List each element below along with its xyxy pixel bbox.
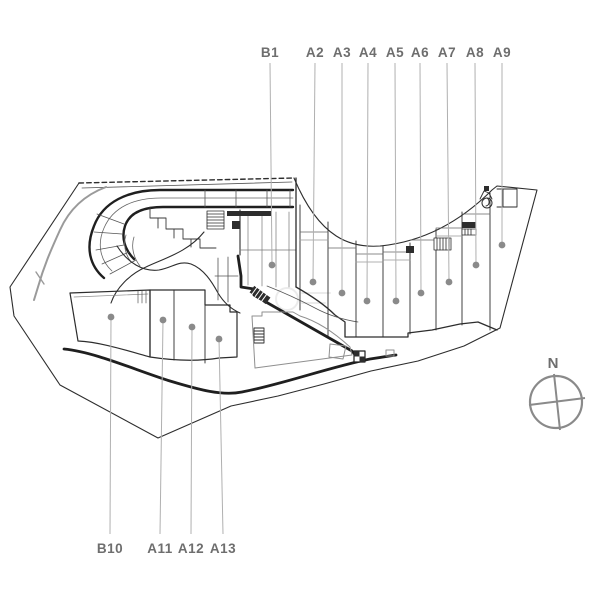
leader-line-A2 [313,63,315,282]
unit-label-A6: A6 [411,45,429,60]
unit-dot-A12 [189,324,196,331]
leader-line-B10 [110,317,111,534]
unit-label-A12: A12 [178,541,204,556]
stair-symbol-3 [462,222,476,235]
boundary-solid [10,178,537,438]
site-plan-canvas: B1A2A3A4A5A6A7A8A9B10A11A12A13 N [0,0,600,600]
block-B1 [227,210,296,287]
stepped-units [150,207,216,248]
north-compass: N [529,355,585,430]
row-east-bottom [296,287,497,337]
unit-dot-A13 [216,336,223,343]
leader-line-A4 [367,63,368,301]
unit-dot-A8 [473,262,480,269]
compass-north-label: N [548,355,559,372]
block-B10 [70,290,150,357]
unit-dot-B1 [269,262,276,269]
checker-pad [354,351,365,362]
unit-label-A8: A8 [466,45,484,60]
unit-label-B1: B1 [261,45,279,60]
podium-edge [64,256,396,393]
unit-dot-A2 [310,279,317,286]
unit-dot-A4 [364,298,371,305]
leader-line-B1 [270,63,272,265]
unit-dot-A11 [160,317,167,324]
unit-dot-A7 [446,279,453,286]
unit-label-A13: A13 [210,541,236,556]
leader-line-A5 [395,63,396,301]
unit-label-A9: A9 [493,45,511,60]
unit-label-B10: B10 [97,541,123,556]
mid-court [215,257,238,302]
row-east [267,178,497,337]
unit-label-A3: A3 [333,45,351,60]
unit-label-A11: A11 [147,541,173,556]
callout-layer: B1A2A3A4A5A6A7A8A9B10A11A12A13 [97,45,511,556]
unit-dot-A5 [393,298,400,305]
site-plan [10,178,537,438]
unit-label-A2: A2 [306,45,324,60]
unit-dot-A3 [339,290,346,297]
unit-label-A7: A7 [438,45,456,60]
unit-label-A5: A5 [386,45,404,60]
ramp-hatch [254,328,264,343]
leader-line-A6 [420,63,421,293]
hairpin-road [89,190,293,278]
unit-dot-A6 [418,290,425,297]
unit-label-A4: A4 [359,45,377,60]
screenshot-root: B1A2A3A4A5A6A7A8A9B10A11A12A13 N [0,0,600,600]
boundary-inner-line [82,182,292,188]
serpentine-path [111,232,240,313]
unit-dot-A9 [499,242,506,249]
unit-dot-B10 [108,314,115,321]
leader-line-A13 [219,339,223,534]
retaining-wall [34,187,106,300]
stair-symbol-1 [207,211,224,229]
spiral-stair-icon [482,198,492,208]
leader-line-A11 [160,320,163,534]
boundary-dashed-top [79,178,294,183]
leader-line-A12 [191,327,192,534]
